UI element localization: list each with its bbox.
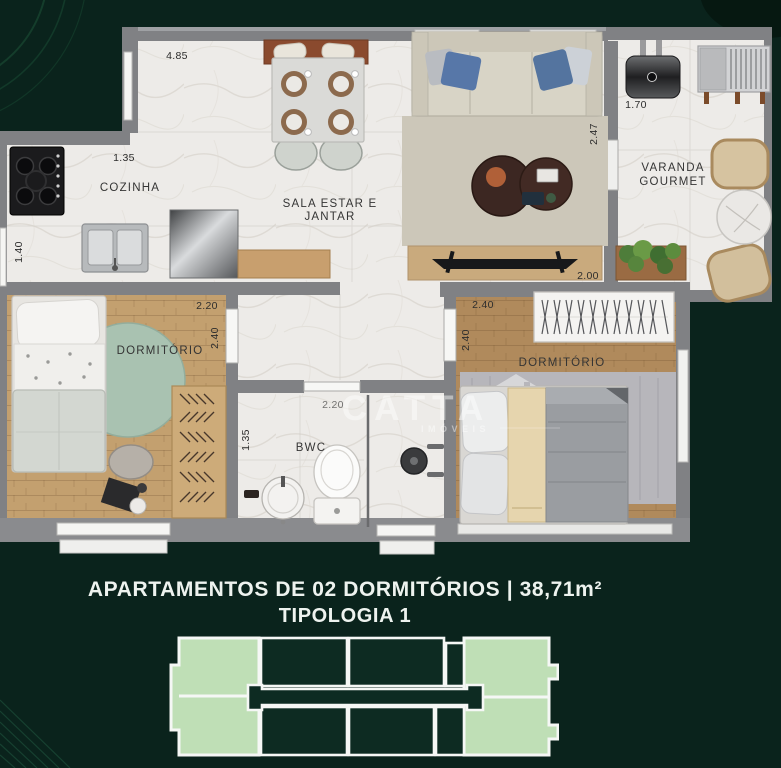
living-room-furniture bbox=[402, 32, 608, 280]
keyplan-unit bbox=[261, 707, 347, 755]
dim-bedroom-left-depth: 2.40 bbox=[209, 327, 221, 349]
watermark-brand: CATTA bbox=[342, 389, 490, 428]
label-bedroom-right: DORMITÓRIO bbox=[519, 356, 606, 369]
dim-hall-width: 2.20 bbox=[322, 399, 344, 411]
coffee-tables bbox=[472, 156, 572, 216]
label-living-1: SALA ESTAR E bbox=[283, 198, 378, 210]
floor-plan: CATTA IMÓVEIS COZINHA SALA ESTAR E JANTA… bbox=[0, 0, 781, 568]
door-bedroom-right bbox=[444, 309, 456, 361]
dim-kitchen-depth: 1.40 bbox=[13, 241, 25, 263]
stripe-lines-bottom-left bbox=[0, 700, 70, 768]
stove-icon bbox=[10, 147, 64, 215]
building-keyplan bbox=[167, 633, 559, 759]
label-balcony-2: GOURMET bbox=[639, 176, 706, 188]
dim-kitchen-width: 1.35 bbox=[113, 152, 135, 164]
tv-stand bbox=[408, 246, 602, 280]
caption-line1: APARTAMENTOS DE 02 DORMITÓRIOS | 38,71m² bbox=[0, 576, 690, 603]
kitchen-counter bbox=[238, 250, 330, 278]
label-bathroom: BWC bbox=[296, 442, 326, 454]
dining-set bbox=[264, 40, 368, 170]
caption-line2: TIPOLOGIA 1 bbox=[0, 603, 690, 630]
dim-living-bottom: 2.00 bbox=[577, 270, 599, 282]
dim-bedroom-left-width: 2.20 bbox=[196, 300, 218, 312]
keyplan-unit bbox=[349, 707, 434, 755]
keyplan-unit bbox=[261, 638, 347, 686]
dim-living-side: 2.47 bbox=[588, 123, 600, 145]
dim-living-top: 4.85 bbox=[166, 50, 188, 62]
desk-chair bbox=[109, 445, 153, 479]
door-bedroom-left bbox=[226, 309, 238, 363]
dim-bedroom-right-width: 2.40 bbox=[472, 299, 494, 311]
watermark-subtitle: IMÓVEIS bbox=[421, 423, 490, 434]
sofa bbox=[412, 32, 602, 116]
planter-icon bbox=[616, 240, 686, 280]
kitchen-sink-icon bbox=[82, 224, 148, 272]
tv-icon bbox=[432, 259, 578, 269]
toilet-icon bbox=[314, 445, 360, 524]
caption: APARTAMENTOS DE 02 DORMITÓRIOS | 38,71m²… bbox=[0, 576, 690, 630]
dim-balcony-width: 1.70 bbox=[625, 99, 647, 111]
wardrobe-right bbox=[534, 292, 674, 342]
keyplan-unit bbox=[349, 638, 444, 686]
dim-bathroom-depth: 1.35 bbox=[240, 429, 252, 451]
fridge-icon bbox=[170, 210, 238, 278]
keyplan-unit bbox=[446, 643, 464, 686]
dim-bedroom-right-depth: 2.40 bbox=[460, 329, 472, 351]
label-kitchen: COZINHA bbox=[100, 182, 160, 194]
keyplan-corridor bbox=[248, 685, 483, 710]
single-bed bbox=[12, 296, 106, 472]
wardrobe-left bbox=[172, 386, 226, 518]
label-bedroom-left: DORMITÓRIO bbox=[117, 344, 204, 357]
keyplan-unit bbox=[436, 707, 464, 755]
label-living-2: JANTAR bbox=[304, 211, 355, 223]
page-canvas: CATTA IMÓVEIS COZINHA SALA ESTAR E JANTA… bbox=[0, 0, 781, 768]
label-balcony-1: VARANDA bbox=[641, 162, 704, 174]
